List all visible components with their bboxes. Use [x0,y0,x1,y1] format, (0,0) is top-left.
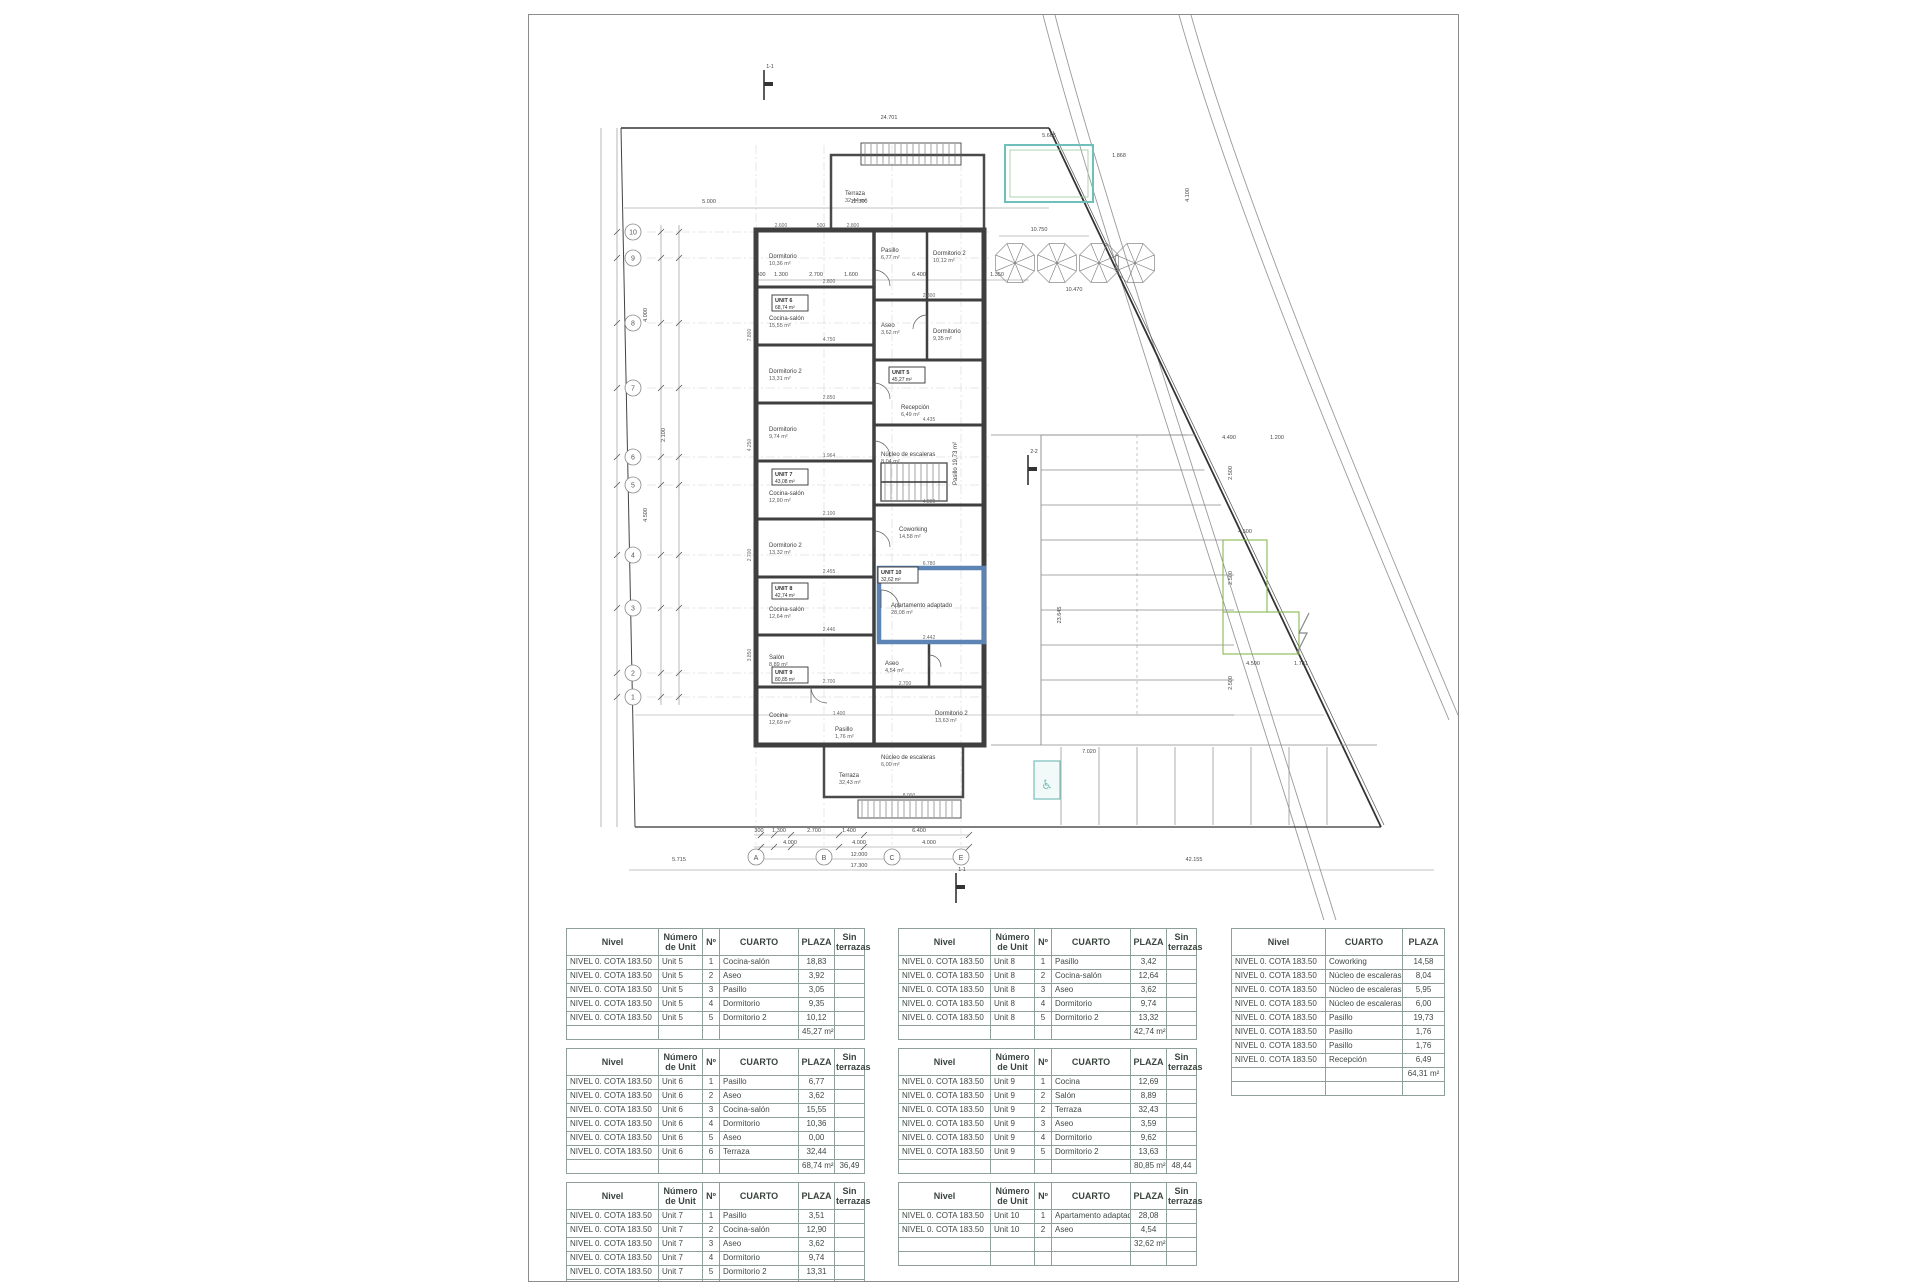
dimension-label: 8.000 [903,793,916,799]
table-cell: 2 [703,970,720,984]
table-cell: NIVEL 0. COTA 183.50 [567,984,659,998]
room-label: Aseo [881,323,895,329]
table-row: NIVEL 0. COTA 183.50Unit 61Pasillo6,77 [567,1076,865,1090]
table-cell: NIVEL 0. COTA 183.50 [899,1118,991,1132]
table-cell [835,970,865,984]
table-cell [703,1160,720,1174]
dimension-label: 10.750 [1031,227,1048,233]
room-area-label: 15,55 m² [769,323,791,329]
room-area-label: 10,36 m² [769,261,791,267]
room-label: Cocina-salón [769,607,804,613]
table-row: NivelNúmero de UnitNºCUARTOPLAZASin terr… [899,1049,1197,1076]
table-cell: 4 [703,998,720,1012]
room-area-label: 6,00 m² [881,762,900,768]
dimension-label: 12.300 [851,199,868,205]
table-header-cell: Nivel [567,1049,659,1076]
table-cell: Unit 6 [659,1132,703,1146]
room-label: Dormitorio [769,254,797,260]
table-header-cell: Número de Unit [659,1183,703,1210]
table-cell [1167,998,1197,1012]
unit-total-label: 80,85 m² [775,677,795,683]
table-row: NIVEL 0. COTA 183.50Pasillo1,76 [1232,1040,1445,1054]
dimension-label: 2.455 [823,569,836,575]
table-cell: Núcleo de escaleras. [1326,970,1403,984]
table-cell [991,1160,1035,1174]
room-label: Coworking [899,527,927,533]
room-area-label: 1,76 m² [835,734,854,740]
table-cell: 5 [703,1132,720,1146]
dimension-label: 4.000 [643,308,649,322]
table-cell: 1,76 [1403,1026,1445,1040]
dimension-label: 12.000 [851,852,868,858]
table-cell [567,1160,659,1174]
table-header-cell: Nivel [567,1183,659,1210]
table-cell: NIVEL 0. COTA 183.50 [1232,1026,1326,1040]
dimension-label: 4.000 [783,840,797,846]
table-cell: NIVEL 0. COTA 183.50 [899,956,991,970]
table-header-cell: Sin terrazas [1167,929,1197,956]
common-areas-table: NivelCUARTOPLAZANIVEL 0. COTA 183.50Cowo… [1231,928,1445,1096]
table-row [899,1252,1197,1266]
dimension-label: 1.300 [772,828,786,834]
room-area-label: 6,49 m² [901,412,920,418]
table-row: NIVEL 0. COTA 183.50Recepción6,49 [1232,1054,1445,1068]
dimension-label: 5.715 [672,857,686,863]
table-row: NIVEL 0. COTA 183.50Unit 53Pasillo3,05 [567,984,865,998]
dimension-label: 2.500 [1228,571,1234,585]
table-cell: Unit 9 [991,1076,1035,1090]
table-cell [1167,1104,1197,1118]
table-cell: 3,62 [1131,984,1167,998]
table-row: NIVEL 0. COTA 183.50Unit 51Cocina-salón1… [567,956,865,970]
room-label: Dormitorio 2 [769,369,802,375]
table-cell: 10,36 [799,1118,835,1132]
table-cell: Coworking [1326,956,1403,970]
table-cell: 1 [703,1210,720,1224]
table-cell: Unit 5 [659,970,703,984]
room-label: Terraza [845,191,866,197]
table-cell [1167,1026,1197,1040]
table-row: 45,27 m² [567,1026,865,1040]
table-cell: NIVEL 0. COTA 183.50 [567,1266,659,1280]
table-cell [835,1012,865,1026]
table-header-cell: PLAZA [1131,929,1167,956]
table-cell: Unit 5 [659,998,703,1012]
table-cell: Aseo [1052,984,1131,998]
structural-grid-lines [647,145,989,845]
room-label: Pasillo [835,727,853,733]
dimension-label: 1.964 [823,453,836,459]
room-label: Cocina-salón [769,316,804,322]
table-cell: Unit 9 [991,1118,1035,1132]
table-row: NIVEL 0. COTA 183.50Unit 54Dormitorio9,3… [567,998,865,1012]
room-label: Salón [769,655,784,661]
unit-table-unit-7: NivelNúmero de UnitNºCUARTOPLAZASin terr… [566,1182,865,1282]
table-cell: Dormitorio [1052,1132,1131,1146]
table-cell: NIVEL 0. COTA 183.50 [567,1238,659,1252]
room-label: Pasillo 19,73 m² [953,442,959,485]
dimension-label: 4.750 [823,337,836,343]
table-cell: Dormitorio [1052,998,1131,1012]
table-cell: Unit 9 [991,1146,1035,1160]
room-area-label: 9,35 m² [933,336,952,342]
dimension-label: 7.800 [747,329,753,342]
table-header-cell: Nivel [899,929,991,956]
table-cell [1326,1082,1403,1096]
dimension-label: 2.800 [823,279,836,285]
room-area-label: 8,04 m² [881,459,900,465]
dimension-label: 2.100 [823,511,836,517]
table-cell: 12,69 [1131,1076,1167,1090]
table-row: NivelNúmero de UnitNºCUARTOPLAZASin terr… [899,929,1197,956]
table-cell: 5,95 [1403,984,1445,998]
table-header-cell: Número de Unit [659,929,703,956]
table-cell: 6 [703,1146,720,1160]
table-cell: 1,76 [1403,1040,1445,1054]
table-header-cell: Sin terrazas [835,929,865,956]
table-cell: 10,12 [799,1012,835,1026]
table-cell: Unit 6 [659,1118,703,1132]
room-area-label: 12,69 m² [769,720,791,726]
table-cell [835,1266,865,1280]
table-cell [1167,1012,1197,1026]
site-boundary [621,128,1384,827]
unit-label: UNIT 6 [775,298,792,304]
table-cell: Dormitorio 2 [720,1012,799,1026]
table-row: NIVEL 0. COTA 183.50Unit 93Aseo3,59 [899,1118,1197,1132]
table-cell [835,1132,865,1146]
table-cell: NIVEL 0. COTA 183.50 [567,1146,659,1160]
dimension-label: 2.700 [823,679,836,685]
table-header-cell: Nivel [567,929,659,956]
table-cell: 68,74 m² [799,1160,835,1174]
dimension-label: 10.470 [1066,287,1083,293]
dimension-label: 2.100 [661,428,667,442]
table-cell [1167,1146,1197,1160]
room-label: Terraza [839,773,860,779]
table-cell: 4 [703,1252,720,1266]
table-cell: Cocina-salón [720,1104,799,1118]
table-header-cell: CUARTO [720,1049,799,1076]
dimension-label: 4.500 [643,508,649,522]
table-cell: 5 [703,1266,720,1280]
dimension-label: 2.700 [809,272,823,278]
table-cell: NIVEL 0. COTA 183.50 [1232,956,1326,970]
table-header-cell: Nivel [1232,929,1326,956]
dimension-label: 7.020 [1082,749,1096,755]
table-cell [1167,1210,1197,1224]
table-cell: Unit 7 [659,1252,703,1266]
table-cell: NIVEL 0. COTA 183.50 [567,1090,659,1104]
table-row: NIVEL 0. COTA 183.50Unit 52Aseo3,92 [567,970,865,984]
section-marker-label: 1-1 [766,64,773,70]
table-cell: 5 [1035,1146,1052,1160]
table-cell: NIVEL 0. COTA 183.50 [567,1224,659,1238]
table-cell: 13,31 [799,1266,835,1280]
unit-label: UNIT 5 [892,370,909,376]
section-markers [764,70,1037,903]
room-area-label: 13,63 m² [935,718,957,724]
table-cell [720,1026,799,1040]
table-cell: Unit 8 [991,956,1035,970]
table-cell: 6,49 [1403,1054,1445,1068]
door-swings [811,270,941,703]
floor-plan: ♿ [529,15,1458,920]
table-cell [659,1026,703,1040]
table-header-cell: PLAZA [799,929,835,956]
table-cell: 64,31 m² [1403,1068,1445,1082]
table-header-cell: CUARTO [1052,1049,1131,1076]
table-header-cell: Sin terrazas [1167,1049,1197,1076]
table-cell: NIVEL 0. COTA 183.50 [899,998,991,1012]
table-cell: 9,62 [1131,1132,1167,1146]
table-row: 42,74 m² [899,1026,1197,1040]
table-cell: 5 [1035,1012,1052,1026]
table-cell [1403,1082,1445,1096]
section-marker-label: 2-2 [1030,449,1037,455]
table-row: NIVEL 0. COTA 183.50Unit 65Aseo0,00 [567,1132,865,1146]
grid-row-label: 1 [631,695,635,702]
table-cell: NIVEL 0. COTA 183.50 [899,1224,991,1238]
table-cell: Pasillo [1326,1012,1403,1026]
table-cell: 28,08 [1131,1210,1167,1224]
dimension-label: 2.446 [823,627,836,633]
room-label: Dormitorio 2 [933,251,966,257]
grid-row-label: 9 [631,256,635,263]
table-row: NIVEL 0. COTA 183.50Núcleo de escaleras.… [1232,998,1445,1012]
table-cell: 6,77 [799,1076,835,1090]
table-cell [1035,1160,1052,1174]
table-cell: 2 [1035,1104,1052,1118]
table-header-cell: PLAZA [799,1049,835,1076]
table-cell [835,1104,865,1118]
table-cell: Unit 9 [991,1132,1035,1146]
dimension-label: 2.800 [923,293,936,299]
dimension-label: 5.000 [702,199,716,205]
room-area-label: 13,32 m² [769,550,791,556]
table-cell [835,1118,865,1132]
table-cell: 3,62 [799,1090,835,1104]
room-label: Núcleo de escaleras [881,755,935,761]
table-cell: Terraza [1052,1104,1131,1118]
room-area-label: 12,90 m² [769,498,791,504]
table-row: NIVEL 0. COTA 183.50Unit 71Pasillo3,51 [567,1210,865,1224]
table-cell [835,1238,865,1252]
table-cell: Cocina-salón [720,1224,799,1238]
table-cell: 3 [1035,1118,1052,1132]
table-header-cell: PLAZA [1403,929,1445,956]
room-area-label: 6,77 m² [881,255,900,261]
table-row: NIVEL 0. COTA 183.50Unit 101Apartamento … [899,1210,1197,1224]
table-header-cell: Número de Unit [991,929,1035,956]
table-cell: 14,58 [1403,956,1445,970]
table-cell: NIVEL 0. COTA 183.50 [899,984,991,998]
table-cell [835,1252,865,1266]
table-cell [1131,1252,1167,1266]
grid-col-label: B [822,855,827,862]
table-row: 68,74 m²36,49 [567,1160,865,1174]
table-cell: 9,74 [1131,998,1167,1012]
table-cell: Aseo [1052,1118,1131,1132]
dimension-label: 2.500 [1228,466,1234,480]
stairs-bottom-outline [858,800,961,818]
dimension-label: 1.300 [774,272,788,278]
unit-table-unit-8: NivelNúmero de UnitNºCUARTOPLAZASin terr… [898,928,1197,1040]
table-header-cell: Nº [1035,1049,1052,1076]
table-row: NivelNúmero de UnitNºCUARTOPLAZASin terr… [567,1183,865,1210]
unit-table-unit-5: NivelNúmero de UnitNºCUARTOPLAZASin terr… [566,928,865,1040]
table-cell: NIVEL 0. COTA 183.50 [1232,1012,1326,1026]
table-header-cell: PLAZA [799,1183,835,1210]
table-header-cell: Nº [703,1183,720,1210]
table-cell: 3,05 [799,984,835,998]
table-cell: NIVEL 0. COTA 183.50 [899,1146,991,1160]
table-cell [991,1252,1035,1266]
unit-total-label: 45,27 m² [892,377,912,383]
unit-table-unit-9: NivelNúmero de UnitNºCUARTOPLAZASin terr… [898,1048,1197,1174]
table-cell: Unit 8 [991,984,1035,998]
table-cell: 2 [703,1224,720,1238]
table-cell: Unit 5 [659,956,703,970]
table-header-cell: PLAZA [1131,1183,1167,1210]
table-header-cell: Nº [1035,929,1052,956]
table-header-cell: CUARTO [1052,929,1131,956]
table-cell [1167,1224,1197,1238]
unit-label: UNIT 8 [775,586,792,592]
table-cell: Cocina-salón [1052,970,1131,984]
table-cell: 42,74 m² [1131,1026,1167,1040]
table-cell: Unit 7 [659,1266,703,1280]
table-row: NIVEL 0. COTA 183.50Unit 64Dormitorio10,… [567,1118,865,1132]
table-cell [1167,1118,1197,1132]
dimension-label: 3.850 [747,649,753,662]
table-cell: Pasillo [1326,1040,1403,1054]
room-area-label: 4,54 m² [885,668,904,674]
dimension-label: 4.435 [923,417,936,423]
table-cell [1167,1132,1197,1146]
table-cell: 9,74 [799,1252,835,1266]
table-cell: 3,59 [1131,1118,1167,1132]
table-cell [835,1210,865,1224]
room-area-label: 3,62 m² [881,330,900,336]
grid-col-label: C [889,855,894,862]
table-cell [1167,984,1197,998]
table-header-cell: Número de Unit [659,1049,703,1076]
table-cell: Aseo [1052,1224,1131,1238]
table-cell [1052,1160,1131,1174]
table-cell: 4 [1035,1132,1052,1146]
grid-row-label: 3 [631,606,635,613]
table-cell: 2 [1035,1224,1052,1238]
table-cell: 32,62 m² [1131,1238,1167,1252]
dimension-label: 17.300 [851,863,868,869]
table-row [1232,1082,1445,1096]
table-cell [1326,1068,1403,1082]
room-area-label: 32,43 m² [839,780,861,786]
table-cell: 9,35 [799,998,835,1012]
table-header-cell: Número de Unit [991,1049,1035,1076]
parking-area [1041,435,1327,825]
table-cell: Unit 10 [991,1224,1035,1238]
table-row: NIVEL 0. COTA 183.50Unit 63Cocina-salón1… [567,1104,865,1118]
table-cell: NIVEL 0. COTA 183.50 [567,1252,659,1266]
table-cell [835,984,865,998]
grid-col-label: E [959,855,964,862]
room-label: Núcleo de escaleras [881,452,935,458]
table-cell [899,1026,991,1040]
grid-row-label: 10 [629,230,637,237]
table-header-cell: Nº [703,929,720,956]
unit-table-unit-6: NivelNúmero de UnitNºCUARTOPLAZASin terr… [566,1048,865,1174]
table-row: NIVEL 0. COTA 183.50Núcleo de escaleras.… [1232,984,1445,998]
tables-column-3: NivelCUARTOPLAZANIVEL 0. COTA 183.50Cowo… [1231,928,1445,1096]
dimension-label: 1.781 [1294,661,1308,667]
table-cell: 5 [703,1012,720,1026]
dimension-label: 1.200 [1270,435,1284,441]
room-label: Pasillo [881,248,899,254]
dimension-label: 4.800 [923,499,936,505]
table-cell [991,1026,1035,1040]
room-label: Cocina-salón [769,491,804,497]
table-header-cell: CUARTO [720,929,799,956]
table-cell: 3,51 [799,1210,835,1224]
table-cell: Cocina-salón [720,956,799,970]
table-row: NIVEL 0. COTA 183.50Unit 91Cocina12,69 [899,1076,1197,1090]
table-cell: 4 [703,1118,720,1132]
dimension-label: 6.400 [912,272,926,278]
room-label: Aseo [885,661,899,667]
table-cell: Unit 9 [991,1104,1035,1118]
dimension-label: 2.700 [899,681,912,687]
unit-total-label: 68,74 m² [775,305,795,311]
room-area-label: 13,31 m² [769,376,791,382]
table-cell: Unit 7 [659,1210,703,1224]
room-area-label: 12,64 m² [769,614,791,620]
table-cell [567,1026,659,1040]
table-cell: Unit 5 [659,984,703,998]
table-cell: 6,00 [1403,998,1445,1012]
table-cell: Aseo [720,970,799,984]
table-cell: 2 [1035,1090,1052,1104]
table-cell: 2 [1035,970,1052,984]
table-cell [720,1160,799,1174]
table-cell: NIVEL 0. COTA 183.50 [567,956,659,970]
dimension-label: 500 [817,223,826,229]
table-cell: Dormitorio [720,998,799,1012]
table-cell [899,1238,991,1252]
table-row: 32,62 m² [899,1238,1197,1252]
svg-text:♿: ♿ [1041,778,1053,793]
table-cell: NIVEL 0. COTA 183.50 [567,1132,659,1146]
drawing-sheet: ♿ [528,14,1459,1282]
table-row: NIVEL 0. COTA 183.50Pasillo1,76 [1232,1026,1445,1040]
table-row: NIVEL 0. COTA 183.50Unit 73Aseo3,62 [567,1238,865,1252]
room-label: Dormitorio [933,329,961,335]
table-cell: NIVEL 0. COTA 183.50 [1232,984,1326,998]
table-cell [1232,1068,1326,1082]
unit-total-label: 42,74 m² [775,593,795,599]
table-header-cell: Nº [703,1049,720,1076]
grid-row-label: 8 [631,321,635,328]
table-cell [659,1160,703,1174]
table-cell: Pasillo [720,1210,799,1224]
table-cell: 1 [703,956,720,970]
table-cell: 3,42 [1131,956,1167,970]
table-header-cell: Sin terrazas [835,1183,865,1210]
room-label: Dormitorio 2 [769,543,802,549]
table-cell: Unit 5 [659,1012,703,1026]
dimension-label: 1.868 [1112,153,1126,159]
